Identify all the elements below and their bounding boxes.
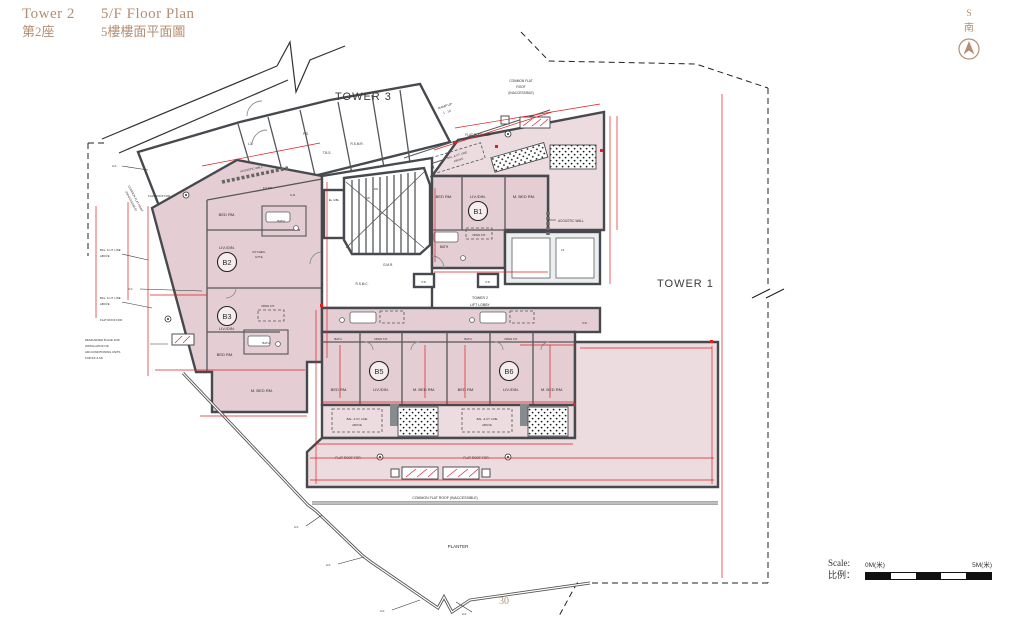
label-mbed-b5: M. BED RM. — [413, 387, 435, 392]
compass-south: 南 — [964, 21, 974, 34]
label-liv-b3: LIV./DIN. — [219, 326, 235, 331]
label-bed-b1: BED RM. — [436, 194, 453, 199]
label-designated-3: AIR-CONDITIONING UNITS — [85, 350, 121, 354]
label-bath-b6: BATH — [464, 337, 471, 341]
label-openkit-b1: OPEN KIT. — [472, 233, 486, 237]
unit-b3-label: B3 — [222, 312, 231, 321]
label-cfr-top-1: COMMON FLAT — [509, 79, 532, 83]
label-mbed-b3: M. BED RM. — [251, 388, 273, 393]
label-bal-ut-left2-2: ABOVE — [100, 302, 110, 306]
label-ramp-slope: 1 : 12 — [443, 109, 452, 115]
label-openkit-b3: OPEN KIT. — [261, 304, 275, 308]
label-af-6: A.F. — [462, 612, 467, 616]
label-gmr: G.M.R. — [383, 263, 393, 267]
label-flat-roof-for-1: FLAT ROOF FOR — [465, 133, 491, 137]
unit-b5-b6-block: BATH OPEN KIT. BATH OPEN KIT. BED RM. LI… — [322, 332, 575, 405]
label-dn: DN — [374, 187, 378, 191]
label-flat-roof-for-2: FLAT ROOF FOR — [148, 194, 170, 198]
label-bal-ut-left2-1: BAL. & UT. LINE — [100, 296, 121, 300]
label-tower3: TOWER 3 — [335, 91, 392, 103]
label-flat-roof-for-3: FLAT ROOF FOR — [100, 318, 122, 322]
label-cfr-top-3: (INACCESSIBLE) — [508, 91, 533, 95]
boundary-break-mark — [752, 289, 784, 298]
label-liv-b1: LIV./DIN. — [470, 194, 486, 199]
label-up: UP — [366, 196, 370, 200]
unit-b2-b3-block — [152, 160, 322, 412]
label-af-1: A.F. — [112, 164, 117, 168]
label-mbed-b1: M. BED RM. — [513, 194, 535, 199]
label-af-3: A.F. — [294, 525, 299, 529]
label-bal-ut-b6-2: ABOVE — [482, 423, 492, 427]
label-rsmc: R.S.M.C. — [356, 282, 369, 286]
label-bath-b1: BATH — [440, 245, 449, 249]
label-bed-b6: BED RM. — [458, 387, 475, 392]
unit-b2-label: B2 — [222, 258, 231, 267]
label-mbed-b6: M. BED RM. — [541, 387, 563, 392]
label-bed-b5: BED RM. — [331, 387, 348, 392]
label-ramp-up: RAMP UP — [438, 102, 453, 110]
floor-plan-drawing: S 南 L3 P.D. T.B.S. R.S.M.R. A.D. RAMP UP… — [0, 0, 1012, 624]
label-bath-b3: BATH — [262, 341, 269, 345]
label-tbs: T.B.S. — [323, 151, 332, 155]
label-bal-ut-b5-2: ABOVE — [352, 423, 362, 427]
label-liv-b5: LIV./DIN. — [373, 387, 389, 392]
label-bal-ut-left1-2: ABOVE — [100, 254, 110, 258]
compass-s: S — [966, 9, 971, 19]
brochure-page: { "header": { "tower_en": "Tower 2", "to… — [0, 0, 1012, 624]
label-bed-b3: BED RM. — [217, 352, 234, 357]
label-bath-b2: BATH — [277, 219, 284, 223]
label-liv-b6: LIV./DIN. — [503, 387, 519, 392]
label-cfr-top-2: ROOF — [516, 85, 525, 89]
label-af-5: A.F. — [380, 609, 385, 613]
label-designated-4: FOR 5/F & 6/F — [85, 356, 103, 360]
label-af-4: A.F. — [326, 563, 331, 567]
unit-b1-label: B1 — [473, 207, 482, 216]
balcony-strip: BAL. & UT. LINE ABOVE BAL. & UT. LINE AB… — [322, 404, 575, 438]
label-kitchenette-2: ETTE — [255, 255, 262, 259]
label-openkit-b6: OPEN KIT. — [504, 337, 518, 341]
label-common-flat-roof-bottom: COMMON FLAT ROOF (INACCESSIBLE) — [412, 496, 477, 500]
tower3-break-mark — [277, 42, 345, 92]
label-hr: H.R. — [290, 193, 296, 197]
label-tower1: TOWER 1 — [657, 278, 714, 290]
label-pd-1: P.D. — [303, 132, 309, 136]
label-rsmr: R.S.M.R. — [351, 142, 364, 146]
label-l3-left: L3 — [248, 142, 252, 146]
label-designated-2: INSTALLATION OF — [85, 344, 109, 348]
label-bal-ut-left1-1: BAL. & UT. LINE — [100, 248, 121, 252]
label-bal-ut-b5-1: BAL. & UT. LINE — [347, 417, 368, 421]
label-bal-ut-b6-1: BAL. & UT. LINE — [477, 417, 498, 421]
label-el: EL./UBL — [329, 198, 340, 202]
label-pd-4: P.D. — [582, 321, 587, 325]
label-acoustic-wall-right: ACOUSTIC WALL — [558, 219, 584, 223]
label-af-2: A.F. — [128, 287, 133, 291]
corridor-strip: P.D. — [322, 308, 600, 332]
label-kitchenette-1: KITCHEN- — [252, 250, 265, 254]
compass-north-arrow-icon — [964, 41, 975, 55]
unit-b5-label: B5 — [374, 367, 383, 376]
label-designated-1: DESIGNATED PLACE FOR — [85, 338, 120, 342]
label-planter: PLANTER — [448, 544, 470, 549]
label-l3-lift: L3 — [561, 248, 565, 252]
label-fspd: F.S.P.D. — [263, 186, 273, 190]
label-liv-b2: LIV./DIN. — [219, 245, 235, 250]
label-pd-3: P.D. — [485, 280, 490, 284]
label-bath-b5: BATH — [334, 337, 341, 341]
label-openkit-b5: OPEN KIT. — [374, 337, 388, 341]
compass: S 南 — [959, 9, 979, 59]
label-pd-2: P.D. — [421, 280, 426, 284]
label-tower2-lobby: TOWER 2 — [472, 296, 488, 300]
label-lift-lobby: LIFT LOBBY — [470, 303, 490, 307]
label-bed-b2: BED RM. — [219, 212, 236, 217]
unit-b6-label: B6 — [504, 367, 513, 376]
